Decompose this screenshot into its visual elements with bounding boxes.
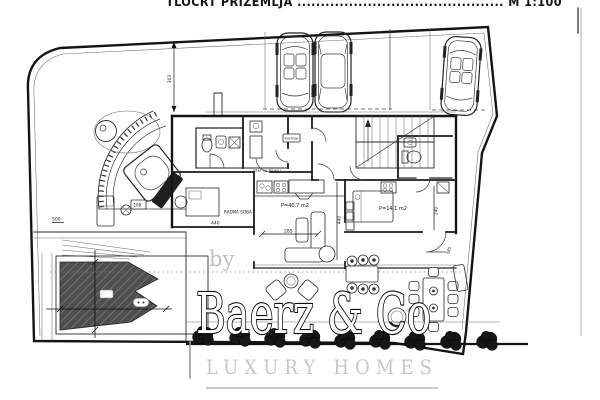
parking-area: 303 bbox=[167, 29, 487, 116]
living-area-label: P=40.7 m2 bbox=[281, 203, 309, 209]
annotations: RADNA SOBA 440 P=40.7 m2 P=14.1 m2 izlaz… bbox=[52, 168, 452, 261]
dim-plot-left: 500 bbox=[52, 217, 61, 223]
drawing-title: TLOCRT PRIZEMLJA .......................… bbox=[166, 0, 562, 9]
dim-drive-depth: 303 bbox=[167, 75, 173, 84]
dim-living-depth: 440 bbox=[337, 216, 343, 225]
dim-suite-depth: 240 bbox=[434, 207, 440, 216]
dining-chair-icon bbox=[347, 256, 357, 266]
desk-icon bbox=[186, 188, 219, 216]
cooktop-icon bbox=[274, 181, 288, 193]
dim-spa-step: 108 bbox=[134, 203, 142, 208]
bush-icon bbox=[477, 331, 498, 350]
dim-living-width: 285 bbox=[284, 229, 293, 235]
toilet-icon bbox=[407, 151, 421, 163]
armchair-icon bbox=[296, 218, 308, 242]
floor-plan-page: 303 108 bbox=[0, 0, 600, 400]
floor-plan-drawing: 303 108 bbox=[0, 0, 600, 400]
car-sedan-icon bbox=[314, 32, 353, 112]
study-room-label: RADNA SOBA bbox=[224, 210, 252, 215]
bench-icon bbox=[97, 196, 114, 226]
appliance-icon bbox=[250, 121, 262, 132]
chair-icon bbox=[175, 196, 187, 208]
lounger-icon bbox=[151, 171, 183, 209]
drawing-frame bbox=[578, 8, 581, 336]
watermark-brand: Baerz & Co bbox=[196, 282, 431, 347]
outdoor-chair-icon bbox=[448, 308, 458, 317]
bush-icon bbox=[441, 331, 462, 350]
pantry-fixtures: kuhinja bbox=[250, 121, 300, 158]
tree-trunk-icon bbox=[96, 121, 117, 142]
exit-note-label: izlaz na terasu bbox=[253, 168, 281, 173]
bathroom-fixtures bbox=[202, 135, 240, 152]
dining-table-icon bbox=[346, 266, 378, 282]
dining-chair-icon bbox=[369, 255, 379, 265]
watermark-by: by bbox=[209, 247, 234, 271]
sofa-icon bbox=[311, 212, 325, 252]
outdoor-chair-icon bbox=[429, 268, 439, 277]
sink-icon bbox=[404, 138, 416, 147]
dim-study-width: 440 bbox=[211, 221, 220, 227]
outdoor-chair-icon bbox=[448, 295, 458, 304]
tree-canopy-icon bbox=[94, 111, 160, 153]
study-furniture bbox=[175, 188, 219, 216]
fridge-icon bbox=[250, 136, 262, 158]
dining-chair-icon bbox=[358, 255, 368, 265]
car-convertible-icon bbox=[439, 36, 483, 117]
pantry-label: kuhinja bbox=[285, 137, 298, 141]
drive-dimension: 303 bbox=[167, 42, 177, 112]
watermark-tagline: LUXURY HOMES bbox=[206, 355, 438, 379]
dim-door-width: 385 bbox=[445, 246, 452, 255]
car-convertible-icon bbox=[276, 33, 315, 111]
kitchen-fixtures bbox=[254, 180, 344, 199]
suite-area-label: P=14.1 m2 bbox=[379, 206, 407, 212]
staircase bbox=[356, 116, 434, 168]
sink-icon bbox=[216, 136, 226, 148]
pool-area bbox=[34, 232, 208, 341]
island-icon bbox=[289, 180, 324, 193]
